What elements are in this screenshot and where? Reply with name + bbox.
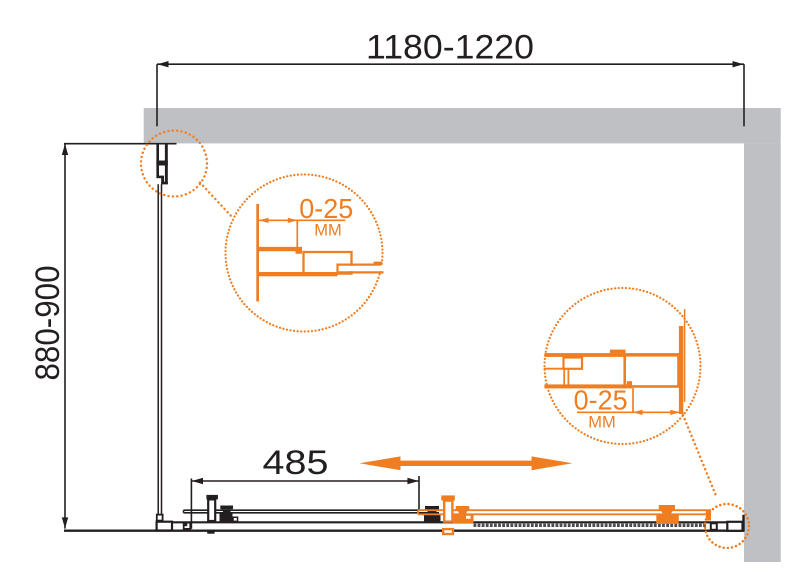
svg-text:0-25: 0-25 xyxy=(574,385,628,416)
svg-text:MM: MM xyxy=(314,222,342,240)
svg-text:0-25: 0-25 xyxy=(299,193,353,224)
svg-text:485: 485 xyxy=(263,444,329,482)
svg-text:1180-1220: 1180-1220 xyxy=(366,29,534,67)
svg-text:MM: MM xyxy=(588,414,616,432)
svg-text:880-900: 880-900 xyxy=(29,266,67,381)
